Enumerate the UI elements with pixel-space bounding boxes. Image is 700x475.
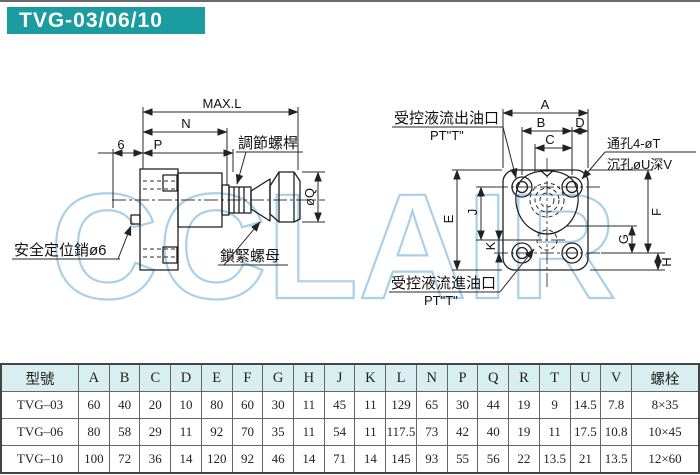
model-cell: TVG–06 — [1, 419, 79, 446]
value-cell: 10.8 — [601, 419, 632, 446]
table-row: TVG–101007236141209246147114145935556221… — [1, 446, 699, 474]
value-cell: 19 — [509, 392, 540, 419]
value-cell: 71 — [324, 446, 355, 474]
table-header-cell: K — [355, 364, 386, 392]
value-cell: 42 — [447, 419, 478, 446]
table-header-cell: J — [324, 364, 355, 392]
value-cell: 60 — [232, 392, 263, 419]
table-header-cell: L — [386, 364, 417, 392]
value-cell: 100 — [79, 446, 110, 474]
dim-label-g: G — [616, 234, 631, 244]
value-cell: 36 — [140, 446, 171, 474]
value-cell: 14.5 — [570, 392, 601, 419]
model-cell: TVG–03 — [1, 392, 79, 419]
value-cell: 65 — [416, 392, 447, 419]
value-cell: 44 — [478, 392, 509, 419]
table-header-cell: G — [263, 364, 294, 392]
table-header-cell: C — [140, 364, 171, 392]
value-cell: 72 — [109, 446, 140, 474]
label-inlet-port: 受控液流進油口 — [391, 275, 496, 292]
value-cell: 120 — [201, 446, 232, 474]
label-safety-pin: 安全定位銷ø6 — [14, 241, 107, 259]
table-header-cell: N — [416, 364, 447, 392]
value-cell: 80 — [79, 419, 110, 446]
table-header-cell: P — [447, 364, 478, 392]
value-cell: 145 — [386, 446, 417, 474]
value-cell: 11 — [355, 419, 386, 446]
value-cell: 14 — [171, 446, 202, 474]
label-through-hole: 通孔4-øT — [607, 136, 661, 151]
dim-label-max-l: MAX.L — [202, 96, 241, 111]
value-cell: 73 — [416, 419, 447, 446]
dim-label-k: K — [483, 241, 498, 250]
value-cell: 13.5 — [601, 446, 632, 474]
value-cell: 35 — [263, 419, 294, 446]
table-header-cell: 螺栓 — [632, 364, 700, 392]
datasheet-page: CCLAIR — [0, 0, 700, 475]
technical-drawing: CCLAIR — [0, 0, 700, 363]
dimension-table: 型號ABCDEFGHJKLNPQRTUV螺栓 TVG–0360402010806… — [0, 363, 700, 474]
label-counterbore: 沉孔øU深V — [607, 157, 672, 172]
table-header-cell: B — [109, 364, 140, 392]
value-cell: 93 — [416, 446, 447, 474]
table-header-cell: D — [171, 364, 202, 392]
table-header-cell: V — [601, 364, 632, 392]
table-header-cell: A — [79, 364, 110, 392]
value-cell: 14 — [355, 446, 386, 474]
table-row: TVG–0680582911927035115411117.5734240191… — [1, 419, 699, 446]
value-cell: 11 — [171, 419, 202, 446]
value-cell: 21 — [570, 446, 601, 474]
table-header-cell: H — [294, 364, 325, 392]
value-cell: 40 — [109, 392, 140, 419]
label-outlet-port: 受控液流出油口 — [394, 110, 499, 127]
value-cell: 30 — [263, 392, 294, 419]
label-adjust-screw: 調節螺桿 — [238, 134, 298, 152]
table-header-row: 型號ABCDEFGHJKLNPQRTUV螺栓 — [1, 364, 699, 392]
table-header-cell: F — [232, 364, 263, 392]
table-header-cell: T — [539, 364, 570, 392]
label-inlet-port-thread: PT"T" — [424, 293, 458, 308]
dim-label-n: N — [181, 116, 190, 131]
value-cell: 10×45 — [632, 419, 700, 446]
dim-label-p: P — [154, 137, 163, 152]
table-header-cell: 型號 — [1, 364, 79, 392]
value-cell: 70 — [232, 419, 263, 446]
table-header-cell: U — [570, 364, 601, 392]
value-cell: 129 — [386, 392, 417, 419]
value-cell: 7.8 — [601, 392, 632, 419]
dim-label-f: F — [649, 208, 664, 216]
dim-label-b: B — [537, 115, 546, 130]
value-cell: 117.5 — [386, 419, 417, 446]
value-cell: 60 — [79, 392, 110, 419]
value-cell: 55 — [447, 446, 478, 474]
model-cell: TVG–10 — [1, 446, 79, 474]
table-row: TVG–036040201080603011451112965304419914… — [1, 392, 699, 419]
value-cell: 19 — [509, 419, 540, 446]
value-cell: 11 — [539, 419, 570, 446]
dim-label-6: 6 — [117, 137, 124, 152]
dim-label-h: H — [659, 257, 674, 266]
value-cell: 92 — [201, 419, 232, 446]
value-cell: 30 — [447, 392, 478, 419]
dim-label-a: A — [541, 97, 550, 112]
value-cell: 9 — [539, 392, 570, 419]
dim-label-d: D — [575, 115, 584, 130]
value-cell: 45 — [324, 392, 355, 419]
value-cell: 11 — [294, 392, 325, 419]
value-cell: 40 — [478, 419, 509, 446]
value-cell: 17.5 — [570, 419, 601, 446]
page-title: TVG-03/06/10 — [7, 7, 205, 34]
table-header-cell: E — [201, 364, 232, 392]
value-cell: 12×60 — [632, 446, 700, 474]
value-cell: 10 — [171, 392, 202, 419]
value-cell: 54 — [324, 419, 355, 446]
label-lock-nut: 鎖緊螺母 — [220, 248, 280, 265]
value-cell: 80 — [201, 392, 232, 419]
dim-label-c: C — [545, 132, 554, 147]
table-body: TVG–036040201080603011451112965304419914… — [1, 392, 699, 474]
dim-label-q: øQ — [302, 188, 317, 206]
value-cell: 29 — [140, 419, 171, 446]
value-cell: 8×35 — [632, 392, 700, 419]
value-cell: 20 — [140, 392, 171, 419]
value-cell: 46 — [263, 446, 294, 474]
dim-label-e: E — [441, 214, 456, 223]
value-cell: 58 — [109, 419, 140, 446]
value-cell: 11 — [355, 392, 386, 419]
value-cell: 13.5 — [539, 446, 570, 474]
table-header-cell: R — [509, 364, 540, 392]
value-cell: 56 — [478, 446, 509, 474]
table-header-cell: Q — [478, 364, 509, 392]
value-cell: 14 — [294, 446, 325, 474]
dim-label-j: J — [465, 209, 480, 216]
value-cell: 92 — [232, 446, 263, 474]
label-outlet-port-thread: PT"T" — [430, 128, 464, 143]
value-cell: 11 — [294, 419, 325, 446]
value-cell: 22 — [509, 446, 540, 474]
